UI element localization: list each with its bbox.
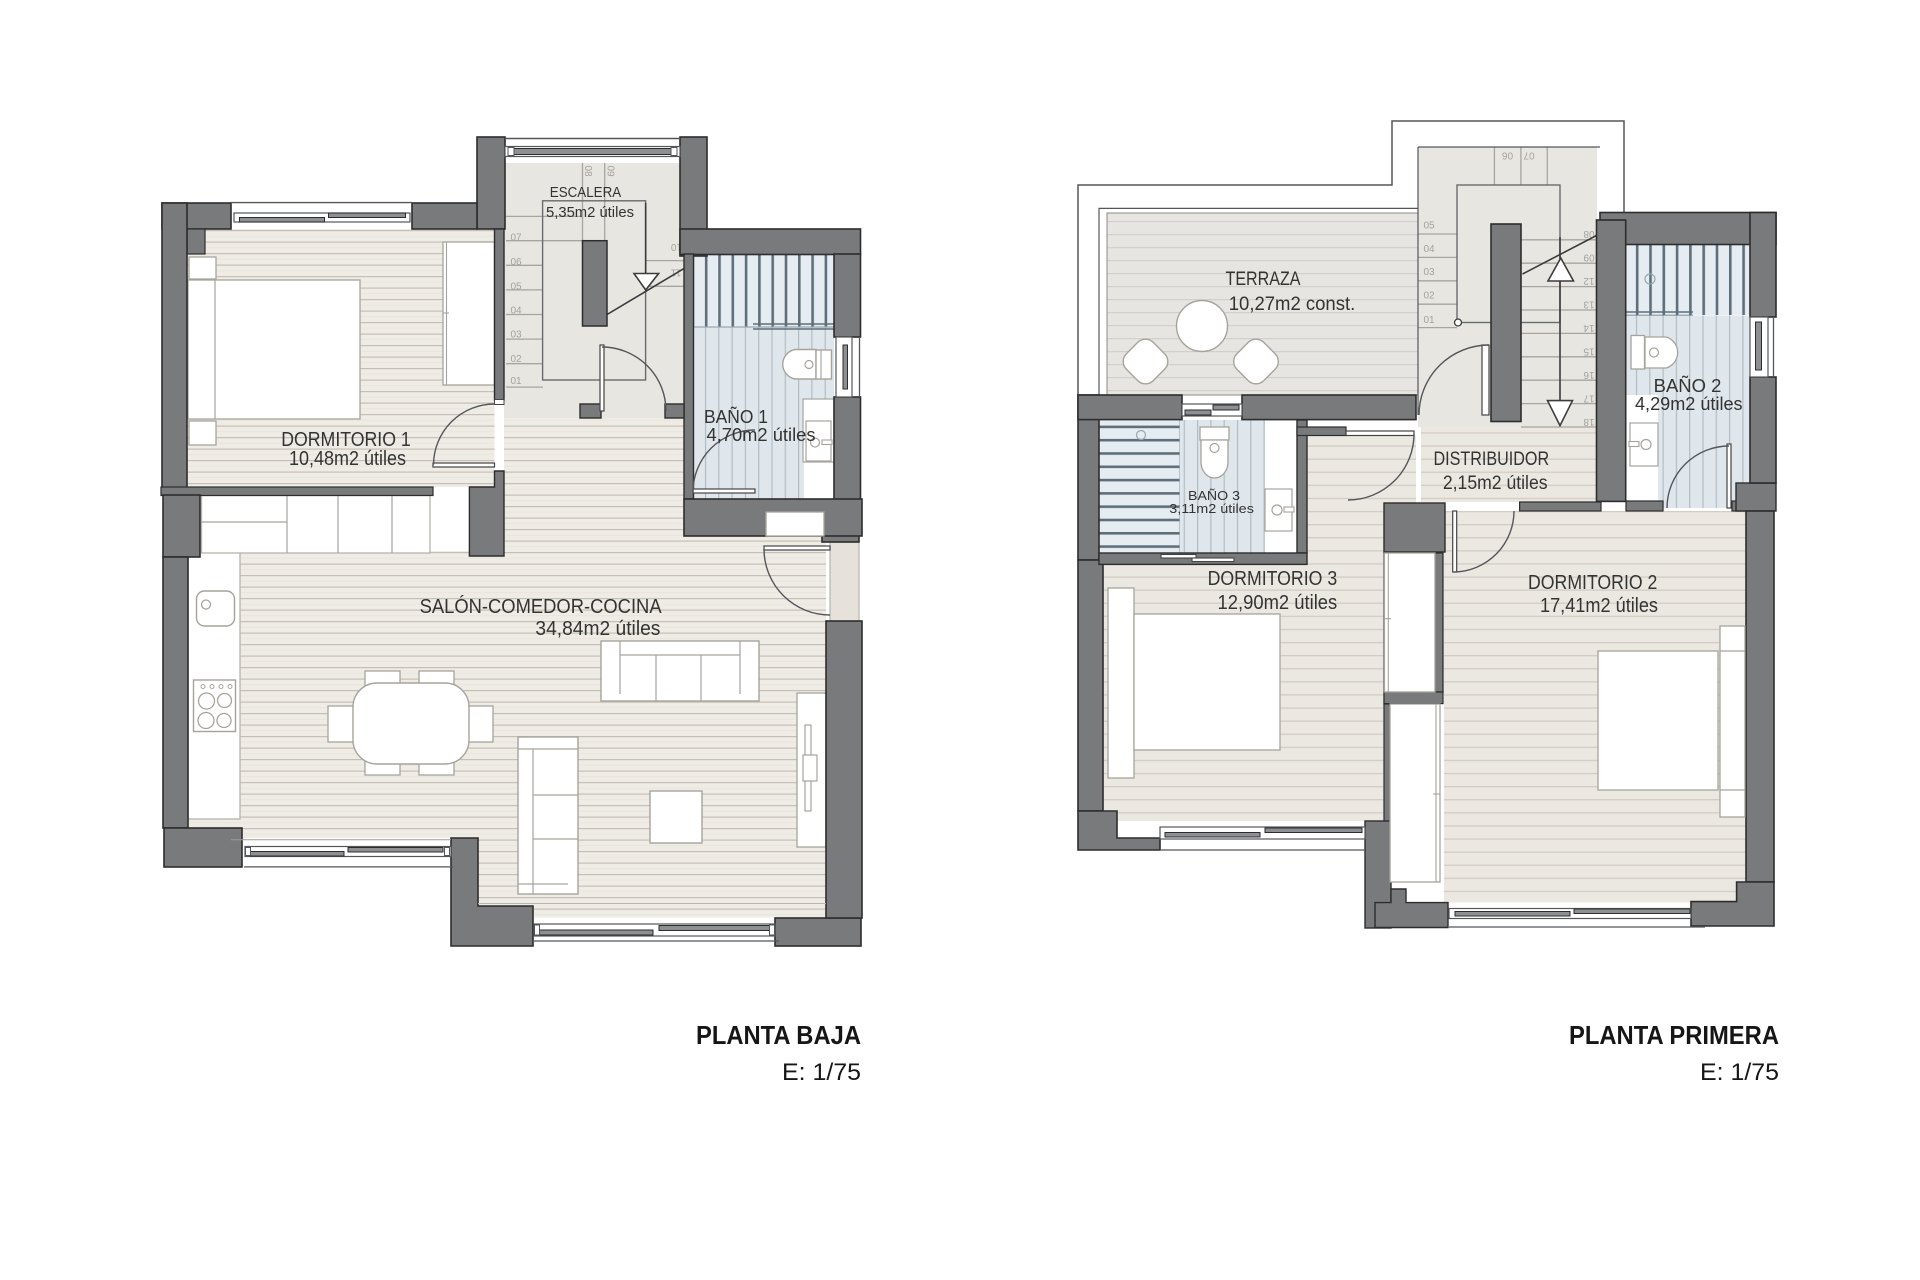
svg-text:14: 14 [1583,322,1595,333]
svg-text:04: 04 [1423,244,1435,255]
svg-text:PLANTA PRIMERA: PLANTA PRIMERA [1569,1020,1779,1050]
svg-text:08: 08 [582,165,593,177]
svg-text:10,27m2 const.: 10,27m2 const. [1229,294,1356,315]
svg-text:01: 01 [510,376,522,387]
svg-text:17,41m2 útiles: 17,41m2 útiles [1540,595,1658,617]
svg-text:01: 01 [1423,315,1435,326]
svg-text:12: 12 [1583,275,1595,286]
svg-text:07: 07 [1523,150,1535,161]
svg-text:DORMITORIO 3: DORMITORIO 3 [1208,568,1338,590]
svg-text:5,35m2 útiles: 5,35m2 útiles [546,204,634,221]
svg-text:4,29m2 útiles: 4,29m2 útiles [1635,393,1743,414]
svg-text:DISTRIBUIDOR: DISTRIBUIDOR [1433,448,1549,470]
svg-text:13: 13 [1583,299,1595,310]
svg-text:06: 06 [510,257,522,268]
svg-text:15: 15 [1583,346,1595,357]
svg-text:PLANTA BAJA: PLANTA BAJA [696,1020,861,1050]
svg-text:09: 09 [1583,252,1595,263]
svg-text:07: 07 [510,233,522,244]
svg-text:02: 02 [510,354,522,365]
svg-text:E: 1/75: E: 1/75 [1700,1059,1779,1086]
svg-text:ESCALERA: ESCALERA [550,184,622,201]
svg-text:E: 1/75: E: 1/75 [782,1059,861,1086]
svg-text:10,48m2 útiles: 10,48m2 útiles [289,448,406,470]
svg-text:06: 06 [1502,150,1514,161]
svg-text:02: 02 [1423,291,1435,302]
svg-text:09: 09 [605,165,616,177]
svg-text:12,90m2 útiles: 12,90m2 útiles [1218,592,1338,614]
svg-text:04: 04 [510,306,522,317]
svg-text:03: 03 [1423,267,1435,278]
svg-text:4,70m2 útiles: 4,70m2 útiles [707,424,816,445]
svg-text:2,15m2 útiles: 2,15m2 útiles [1443,472,1548,494]
svg-text:3,11m2 útiles: 3,11m2 útiles [1169,501,1254,516]
svg-text:05: 05 [510,282,522,293]
svg-text:SALÓN-COMEDOR-COCINA: SALÓN-COMEDOR-COCINA [420,595,663,618]
svg-text:TERRAZA: TERRAZA [1226,269,1301,290]
svg-text:05: 05 [1423,221,1435,232]
svg-text:DORMITORIO 2: DORMITORIO 2 [1528,572,1657,594]
svg-text:18: 18 [1583,416,1595,427]
svg-text:17: 17 [1583,393,1595,404]
svg-text:34,84m2 útiles: 34,84m2 útiles [535,618,660,640]
svg-text:16: 16 [1583,369,1595,380]
svg-text:03: 03 [510,330,522,341]
